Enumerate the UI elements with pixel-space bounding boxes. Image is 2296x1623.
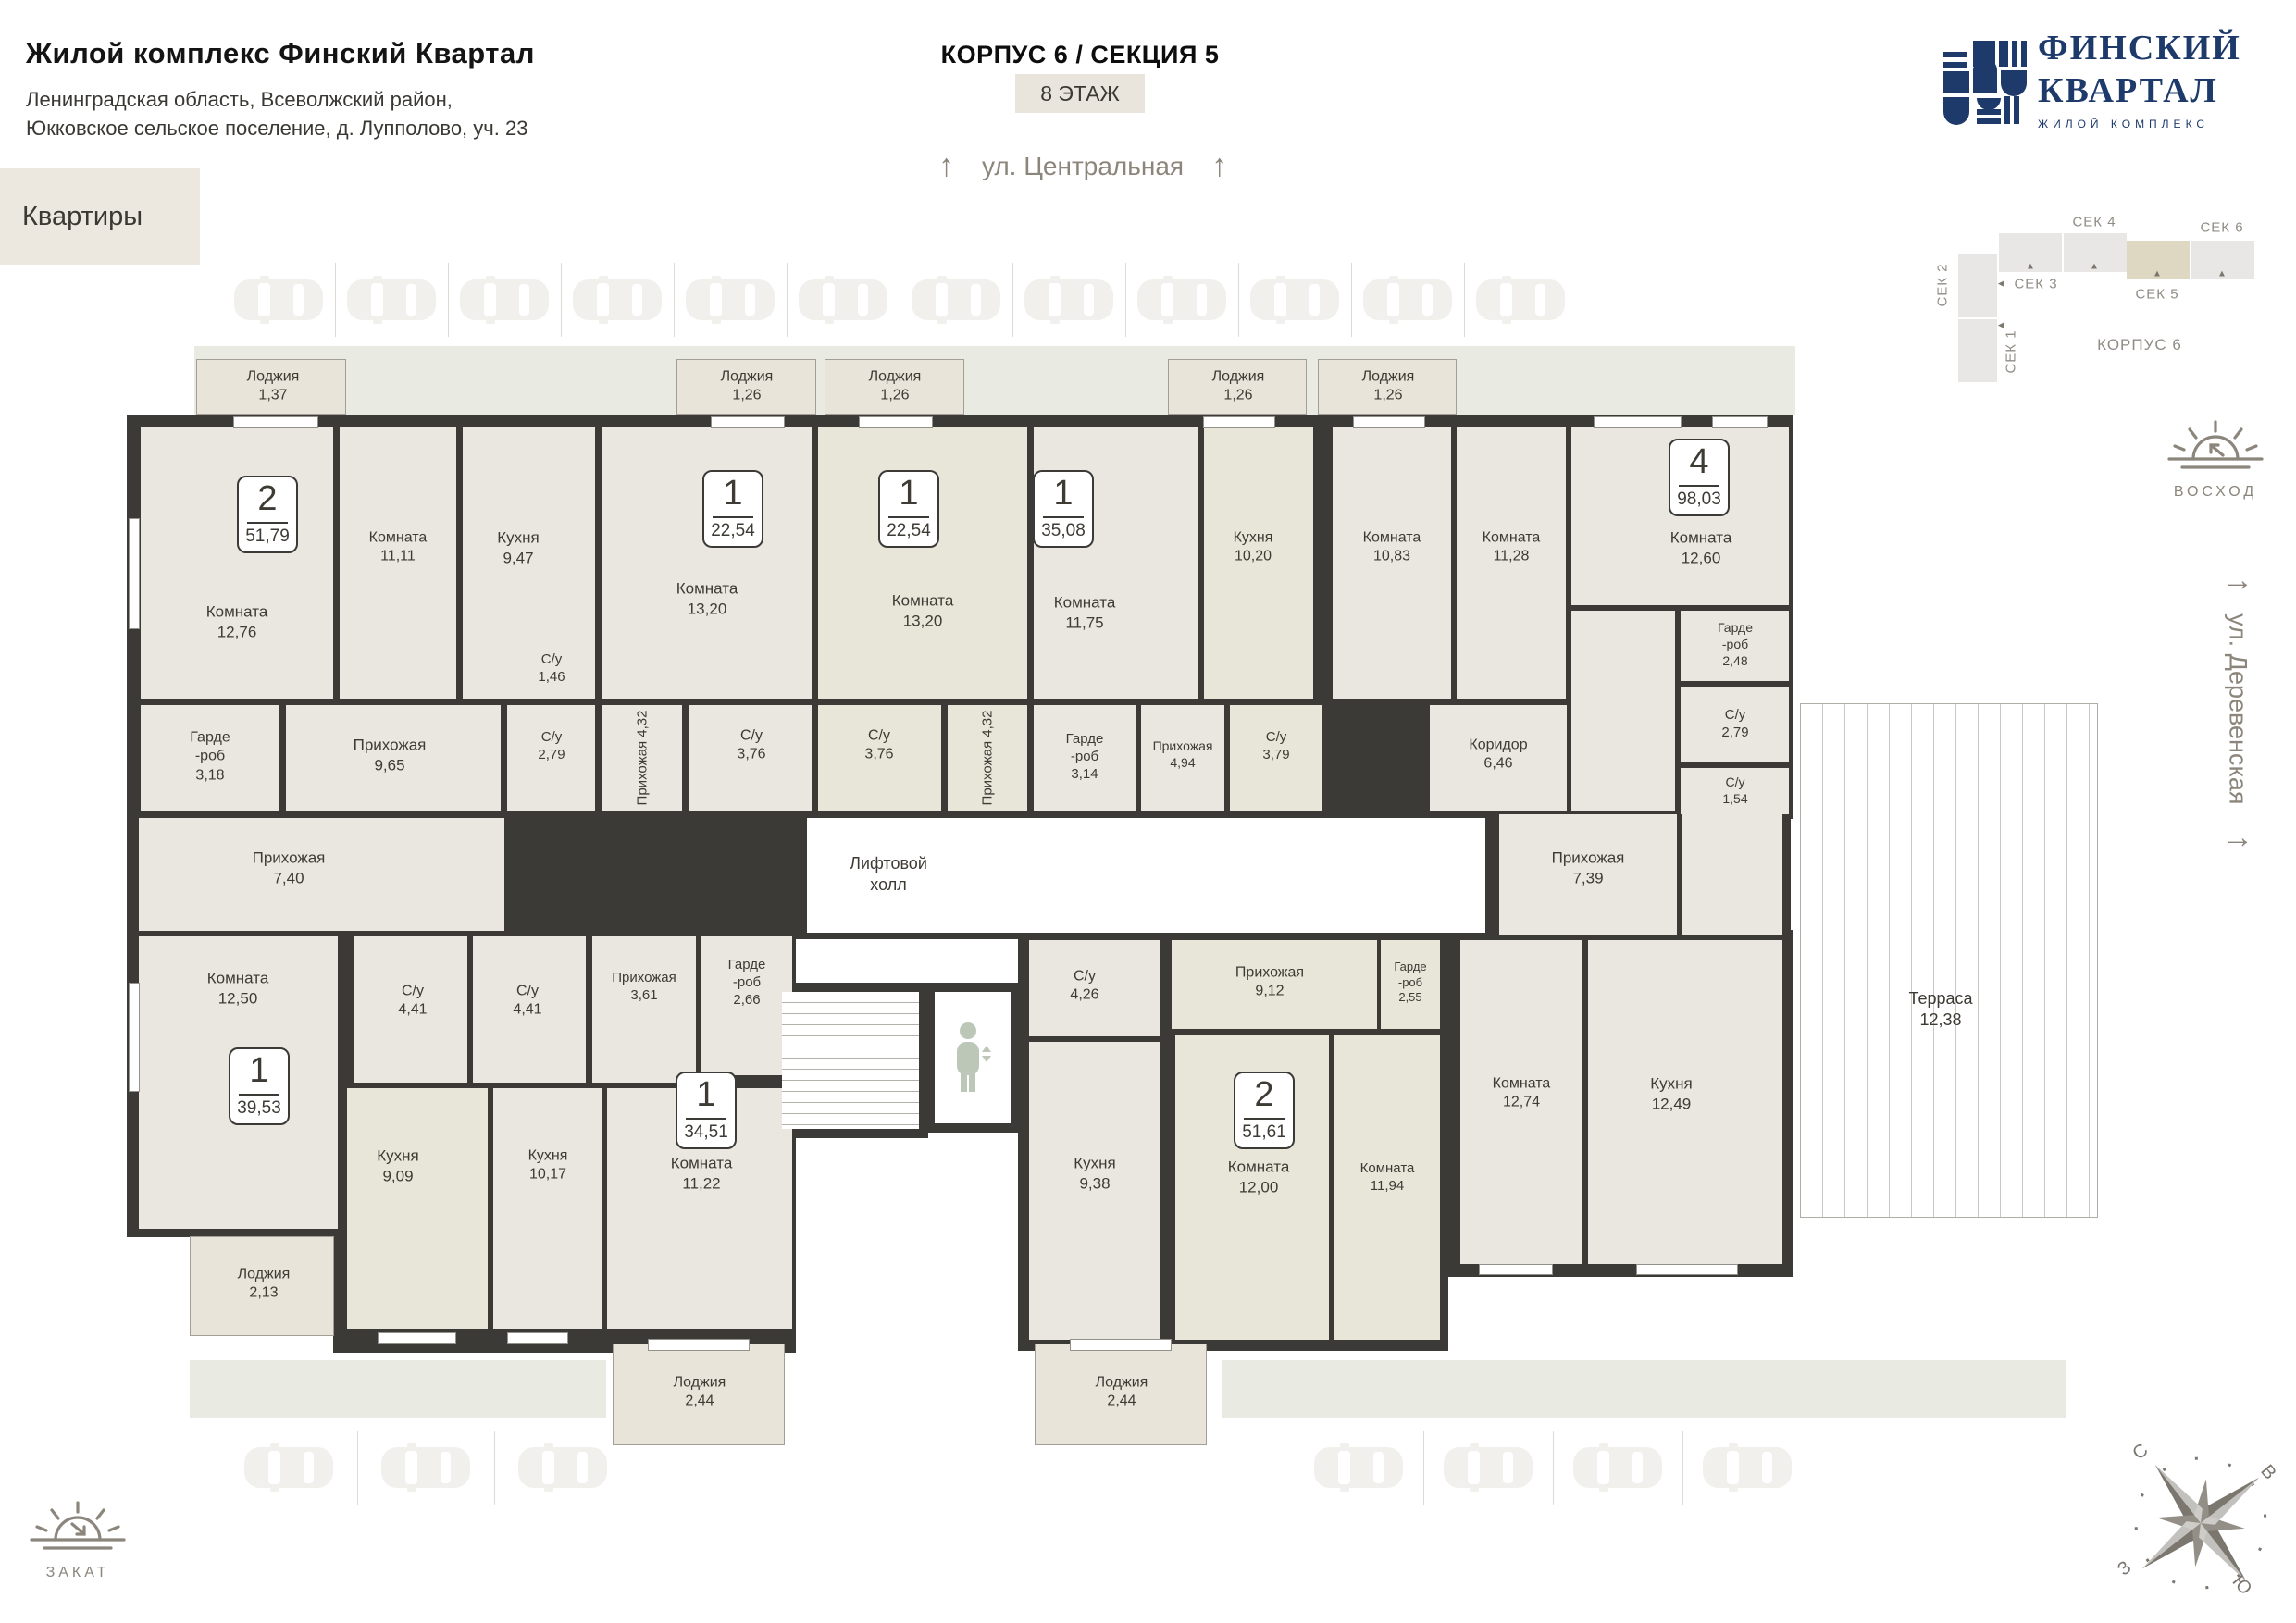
hall-4-32-a-label: Прихожая 4,32: [633, 711, 651, 806]
parking-car-icon: [674, 263, 788, 337]
hall-4-94: Прихожая4,94: [1141, 705, 1224, 811]
floor-badge: 8 ЭТАЖ: [1015, 74, 1145, 113]
window: [1636, 1264, 1738, 1275]
loggia-1-26-d-label: Лоджия1,26: [1362, 368, 1415, 406]
window: [233, 416, 318, 428]
loggia-1-26-b: Лоджия1,26: [825, 359, 964, 415]
apartment-badge-1-35-08: 135,08: [1033, 470, 1094, 548]
logo-mark-icon: [1943, 41, 2029, 133]
section-label: СЕК 2: [1935, 263, 1951, 306]
hall-3-61-label: Прихожая3,61: [612, 969, 676, 1004]
sunset-label: ЗАКАТ: [28, 1565, 128, 1581]
loggia-2-13-label: Лоджия2,13: [238, 1266, 291, 1304]
elevator: [935, 992, 1011, 1123]
sunrise-label: ВОСХОД: [2166, 484, 2265, 501]
room-11-75: Комната11,75: [1034, 427, 1198, 699]
room-11-11: Комната11,11: [340, 427, 456, 699]
su-2-79: С/у2,79: [507, 705, 595, 811]
rooms-count: 4: [1679, 442, 1719, 487]
kitchen-10-20: Кухня10,20: [1204, 427, 1313, 699]
stairs: [782, 992, 919, 1129]
room-11-22-label: Комната11,22: [671, 1153, 733, 1194]
parking-car-icon: [494, 1431, 631, 1505]
loggia-1-26-c-label: Лоджия1,26: [1212, 368, 1265, 406]
su-4-41-a-label: С/у4,41: [398, 983, 427, 1021]
loggia-1-26-a-label: Лоджия1,26: [721, 368, 774, 406]
floor-f: [139, 818, 196, 931]
loggia-1-26-c: Лоджия1,26: [1168, 359, 1307, 415]
apartment-area: 35,08: [1035, 518, 1092, 546]
room-11-11-label: Комната11,11: [369, 529, 428, 567]
hall-4-32-a: Прихожая 4,32: [602, 705, 682, 811]
parking-car-icon: [357, 1431, 495, 1505]
logo-subtitle: ЖИЛОЙ КОМПЛЕКС: [2038, 118, 2241, 130]
parking-car-icon: [1125, 263, 1239, 337]
su-1-46-label: С/у1,46: [538, 650, 565, 686]
parking-car-icon: [222, 263, 336, 337]
room-11-94: Комната11,94: [1334, 1035, 1440, 1340]
parking-car-icon: [448, 263, 562, 337]
room-12-50-label: Комната12,50: [207, 968, 269, 1009]
apartment-area: 34,51: [677, 1120, 735, 1147]
parking-car-icon: [1682, 1431, 1812, 1505]
parking-car-icon: [220, 1431, 358, 1505]
su-1-54-label: С/у1,54: [1722, 774, 1747, 808]
street-top: ↑ ул. Центральная ↑: [916, 148, 1249, 184]
apartment-badge-1-39-53: 139,53: [229, 1047, 290, 1125]
kitchen-9-09: Кухня9,09: [347, 1088, 488, 1329]
window: [507, 1332, 568, 1344]
kitchen-9-09-label: Кухня9,09: [377, 1146, 419, 1186]
greenery-band: [190, 1360, 606, 1418]
kitchen-12-49: Кухня12,49: [1588, 940, 1782, 1264]
apartment-badge-4-98-03: 498,03: [1669, 439, 1730, 516]
apartment-badge-1-22-54: 122,54: [878, 470, 939, 548]
garde-3-18: Гарде-роб3,18: [141, 705, 279, 811]
loggia-1-37: Лоджия1,37: [196, 359, 346, 415]
garde-2-48-label: Гарде-роб2,48: [1718, 620, 1753, 670]
apartment-area: 98,03: [1670, 487, 1728, 514]
rooms-count: 2: [1244, 1075, 1285, 1120]
garde-2-55-label: Гарде-роб2,55: [1394, 960, 1426, 1006]
apartment-area: 22,54: [880, 518, 937, 546]
garde-2-48: Гарде-роб2,48: [1681, 611, 1789, 681]
section-block: [1958, 254, 1997, 317]
su-4-41-b-label: С/у4,41: [513, 983, 541, 1021]
kitchen-10-17: Кухня10,17: [493, 1088, 602, 1329]
hall-9-12: Прихожая9,12: [1172, 940, 1377, 1029]
kitchen-10-17-label: Кухня10,17: [528, 1147, 568, 1185]
su-2-79-b: С/у2,79: [1681, 687, 1789, 762]
loggia-2-44-a: Лоджия2,44: [613, 1344, 785, 1445]
apartment-badge-2-51-61: 251,61: [1234, 1072, 1295, 1149]
floor-d: [1571, 611, 1675, 811]
parking-car-icon: [1351, 263, 1465, 337]
hall-7-40: Прихожая7,40: [196, 818, 504, 931]
hall-7-39-label: Прихожая7,39: [1552, 848, 1625, 888]
up-arrow-icon: ↑: [1211, 148, 1227, 184]
rooms-count: 1: [713, 474, 753, 518]
elevator-person-icon: [951, 1018, 994, 1097]
su-1-54: С/у1,54: [1681, 768, 1789, 814]
room-12-76: Комната12,76: [141, 427, 333, 699]
room-11-28: Комната11,28: [1457, 427, 1566, 699]
compass-rose: С В З Ю: [2117, 1440, 2284, 1606]
hall-3-61: Прихожая3,61: [592, 936, 696, 1083]
block-section-title: КОРПУС 6 / СЕКЦИЯ 5: [895, 41, 1265, 69]
su-3-79-a: С/у3,79: [1230, 705, 1322, 811]
loggia-2-44-a-label: Лоджия2,44: [674, 1374, 726, 1412]
su-3-76-a-label: С/у3,76: [737, 727, 765, 765]
greenery-band: [1222, 1360, 2066, 1418]
parking-car-icon: [335, 263, 449, 337]
lift-hall-label: Лифтовойхолл: [850, 853, 927, 896]
garde-2-66: Гарде-роб2,66: [701, 936, 792, 1075]
su-4-41-b: С/у4,41: [473, 936, 586, 1083]
logo: ФИНСКИЙ КВАРТАЛ ЖИЛОЙ КОМПЛЕКС: [2038, 28, 2241, 130]
room-12-00-label: Комната12,00: [1228, 1157, 1290, 1197]
room-10-83: Комната10,83: [1333, 427, 1451, 699]
sunset-legend: ЗАКАТ: [28, 1499, 128, 1581]
kitchen-9-38-label: Кухня9,38: [1074, 1153, 1116, 1194]
section-arrow-icon: ▲: [2026, 262, 2035, 272]
apartment-badge-1-22-54: 122,54: [702, 470, 763, 548]
su-3-76-a: С/у3,76: [689, 705, 812, 811]
room-10-83-label: Комната10,83: [1363, 529, 1421, 567]
loggia-1-37-label: Лоджия1,37: [247, 368, 300, 406]
room-13-20-a-label: Комната13,20: [676, 578, 738, 619]
parking-car-icon: [1423, 1431, 1554, 1505]
street-top-label: ул. Центральная: [982, 152, 1184, 181]
apartment-area: 51,79: [239, 524, 296, 551]
room-11-94-label: Комната11,94: [1360, 1159, 1415, 1195]
logo-line-1: ФИНСКИЙ: [2038, 28, 2241, 70]
terrace-12-38-label: Терраса12,38: [1908, 988, 1972, 1031]
section-label: СЕК 5: [2135, 287, 2178, 303]
rooms-count: 1: [1043, 474, 1084, 518]
parking-car-icon: [1464, 263, 1577, 337]
su-4-26-label: С/у4,26: [1070, 968, 1098, 1006]
garde-3-18-label: Гарде-роб3,18: [190, 728, 230, 785]
section-label: СЕК 3: [2014, 277, 2057, 292]
sunset-icon: [30, 1499, 126, 1556]
window: [129, 518, 140, 629]
kitchen-10-20-label: Кухня10,20: [1234, 529, 1273, 567]
section-label: СЕК 4: [2072, 215, 2116, 230]
right-arrow-icon: →: [2222, 563, 2253, 599]
page-title: Жилой комплекс Финский Квартал: [26, 37, 535, 70]
window: [648, 1339, 750, 1351]
parking-car-icon: [1238, 263, 1352, 337]
sunrise-icon: [2167, 418, 2264, 476]
parking-car-icon: [1553, 1431, 1683, 1505]
room-11-28-label: Комната11,28: [1483, 529, 1541, 567]
loggia-1-26-d: Лоджия1,26: [1318, 359, 1457, 415]
parking-car-icon: [900, 263, 1013, 337]
rooms-count: 2: [247, 479, 288, 524]
window: [859, 416, 933, 428]
kitchen-9-38: Кухня9,38: [1029, 1042, 1160, 1340]
section-arrow-icon: ◄: [1996, 279, 2005, 290]
parking-car-icon: [787, 263, 900, 337]
window: [378, 1332, 456, 1344]
window: [1070, 1339, 1172, 1351]
section-block: [1958, 319, 1997, 382]
lift-hall: Лифтовойхолл: [807, 818, 1485, 933]
apartments-tab[interactable]: Квартиры: [0, 168, 200, 265]
right-arrow-icon: →: [2222, 820, 2253, 856]
rooms-count: 1: [686, 1075, 726, 1120]
apartment-area: 22,54: [704, 518, 762, 546]
hall-9-65: Прихожая9,65: [286, 705, 501, 811]
logo-line-2: КВАРТАЛ: [2038, 70, 2241, 113]
hall-9-12-label: Прихожая9,12: [1235, 964, 1304, 1002]
window: [129, 983, 140, 1092]
section-label: СЕК 6: [2200, 220, 2243, 236]
rooms-count: 1: [239, 1051, 279, 1096]
su-1-46: С/у1,46: [507, 638, 595, 698]
garde-3-14: Гарде-роб3,14: [1034, 705, 1136, 811]
hall-4-32-b: Прихожая 4,32: [948, 705, 1027, 811]
hall-9-65-label: Прихожая9,65: [354, 735, 427, 775]
location-line-1: Ленинградская область, Всеволжский район…: [26, 88, 453, 112]
kitchen-9-47-label: Кухня9,47: [497, 527, 540, 568]
hall-4-32-b-label: Прихожая 4,32: [978, 711, 996, 806]
su-4-41-a: С/у4,41: [354, 936, 467, 1083]
apartment-area: 51,61: [1235, 1120, 1293, 1147]
koridor-6-46: Коридор6,46: [1430, 705, 1567, 811]
su-3-76-b-label: С/у3,76: [864, 727, 893, 765]
window: [1712, 416, 1768, 428]
room-13-20-b: Комната13,20: [818, 427, 1027, 699]
location-line-2: Юкковское сельское поселение, д. Лупполо…: [26, 117, 527, 141]
parking-car-icon: [1012, 263, 1126, 337]
hall-7-40-label: Прихожая7,40: [253, 848, 326, 888]
garde-3-14-label: Гарде-роб3,14: [1066, 730, 1104, 784]
loggia-2-13: Лоджия2,13: [190, 1236, 334, 1336]
su-2-79-b-label: С/у2,79: [1721, 706, 1748, 741]
garde-2-66-label: Гарде-роб2,66: [728, 956, 766, 1010]
window: [711, 416, 785, 428]
room-13-20-a: Комната13,20: [602, 427, 812, 699]
room-12-74: Комната12,74: [1460, 940, 1582, 1264]
apartment-badge-2-51-79: 251,79: [237, 476, 298, 553]
section-arrow-icon: ▲: [2090, 262, 2099, 272]
hall-7-39: Прихожая7,39: [1499, 814, 1677, 935]
section-arrow-icon: ◄: [1996, 321, 2005, 331]
section-arrow-icon: ▲: [2153, 269, 2162, 279]
floor-e: [1682, 814, 1782, 935]
room-12-74-label: Комната12,74: [1493, 1075, 1551, 1113]
loggia-2-44-b-label: Лоджия2,44: [1096, 1374, 1148, 1412]
room-12-60-label: Комната12,60: [1670, 527, 1732, 568]
street-right: → ул. Деревенская →: [2210, 563, 2265, 1053]
terrace-12-38: Терраса12,38: [1800, 703, 2098, 1218]
kitchen-12-49-label: Кухня12,49: [1650, 1073, 1693, 1114]
greenery-band: [194, 346, 1795, 415]
room-13-20-b-label: Комната13,20: [892, 590, 954, 631]
sunrise-legend: ВОСХОД: [2166, 418, 2265, 501]
apartment-badge-1-34-51: 134,51: [676, 1072, 737, 1149]
section-label: СЕК 1: [2004, 329, 2019, 373]
apartment-area: 39,53: [230, 1096, 288, 1123]
loggia-1-26-b-label: Лоджия1,26: [869, 368, 922, 406]
section-label: КОРПУС 6: [2097, 336, 2182, 354]
su-3-79-a-label: С/у3,79: [1262, 728, 1289, 763]
window: [1594, 416, 1682, 428]
window: [1479, 1264, 1553, 1275]
koridor-6-46-label: Коридор6,46: [1469, 737, 1527, 774]
loggia-1-26-a: Лоджия1,26: [676, 359, 816, 415]
loggia-2-44-b: Лоджия2,44: [1035, 1344, 1207, 1445]
window: [1203, 416, 1275, 428]
su-2-79-label: С/у2,79: [538, 728, 565, 763]
street-right-label: ул. Деревенская: [2224, 613, 2253, 805]
garde-2-55: Гарде-роб2,55: [1381, 940, 1440, 1029]
floor-plan-page: Жилой комплекс Финский Квартал Ленинград…: [0, 0, 2296, 1623]
room-12-76-label: Комната12,76: [206, 601, 268, 642]
hall-4-94-label: Прихожая4,94: [1153, 738, 1213, 772]
window: [1353, 416, 1425, 428]
su-4-26: С/у4,26: [1029, 940, 1160, 1036]
up-arrow-icon: ↑: [938, 148, 954, 184]
room-11-75-label: Комната11,75: [1054, 592, 1116, 633]
rooms-count: 1: [888, 474, 929, 518]
section-arrow-icon: ▲: [2217, 269, 2227, 279]
parking-car-icon: [561, 263, 675, 337]
parking-car-icon: [1294, 1431, 1424, 1505]
su-3-76-b: С/у3,76: [818, 705, 941, 811]
